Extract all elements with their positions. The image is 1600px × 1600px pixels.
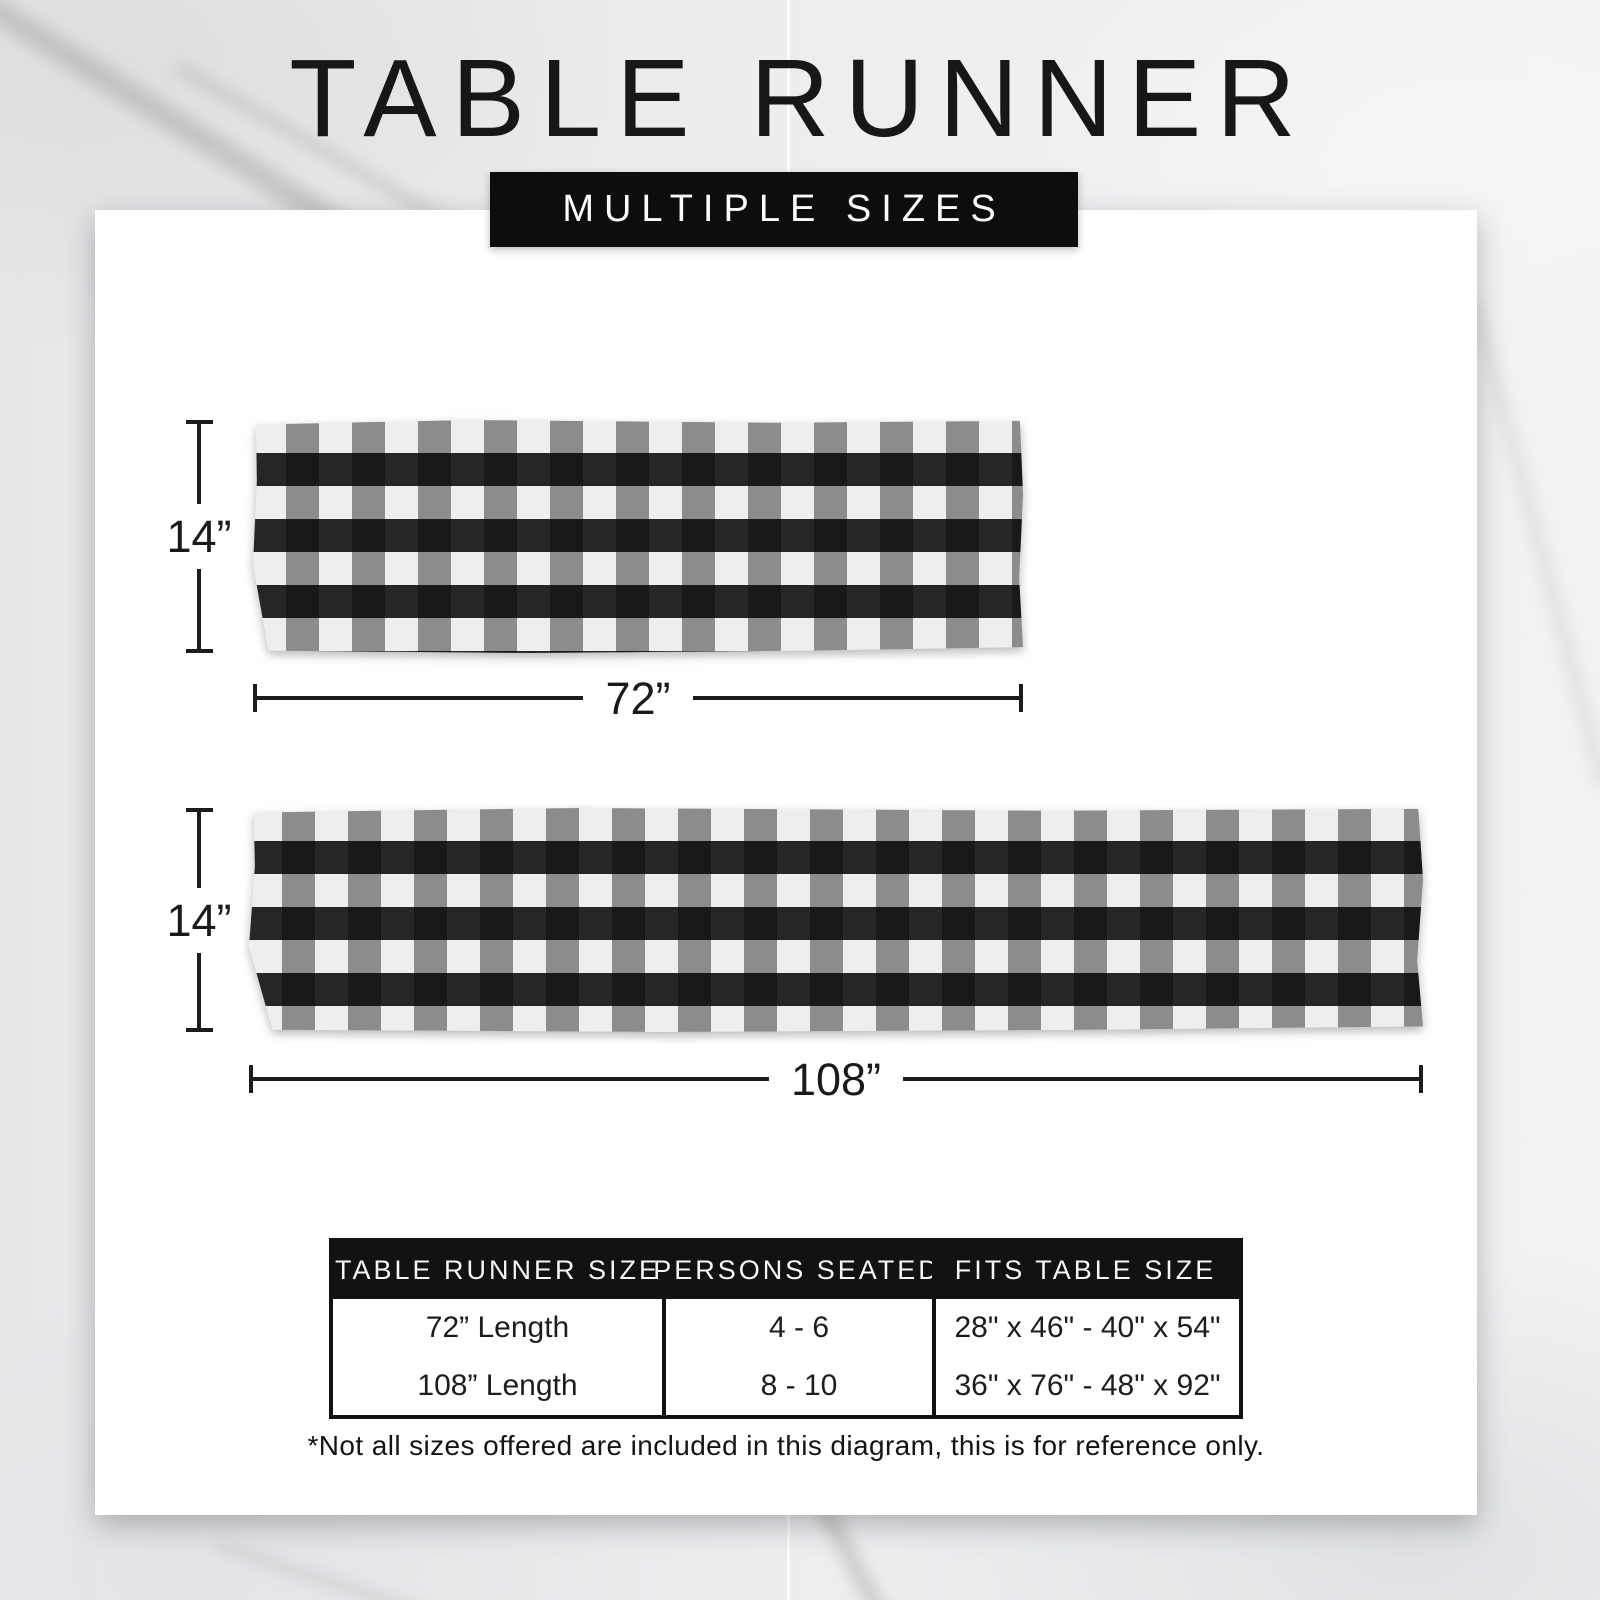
size-table-cell: 4 - 6 bbox=[662, 1299, 932, 1357]
size-table-header-fits-table-size: FITS TABLE SIZE bbox=[932, 1242, 1239, 1299]
dimension-line bbox=[197, 953, 201, 1029]
length-label-72-runner: 72” bbox=[605, 676, 670, 721]
size-table-header-persons-seated: PERSONS SEATED bbox=[662, 1242, 932, 1299]
dimension-line bbox=[253, 1077, 769, 1081]
size-table-cell: 72” Length bbox=[333, 1299, 662, 1357]
height-label-72-runner: 14” bbox=[166, 514, 231, 559]
length-label-108-runner: 108” bbox=[791, 1057, 881, 1102]
buffalo-check-pattern bbox=[253, 420, 1023, 653]
size-table-cell: 28" x 46" - 40" x 54" bbox=[932, 1299, 1239, 1357]
page-title: TABLE RUNNER bbox=[0, 44, 1600, 154]
height-label-108-runner: 14” bbox=[166, 898, 231, 943]
dimension-cap bbox=[186, 1028, 213, 1032]
marble-vein bbox=[216, 1540, 619, 1600]
subtitle-banner: MULTIPLE SIZES bbox=[490, 172, 1078, 247]
size-table-cell: 8 - 10 bbox=[662, 1357, 932, 1415]
dimension-cap bbox=[1019, 684, 1023, 712]
height-dimension-72: 14” bbox=[149, 420, 249, 653]
size-table-cell: 36" x 76" - 48" x 92" bbox=[932, 1357, 1239, 1415]
buffalo-check-pattern bbox=[249, 808, 1423, 1032]
content-card: 14” 72” 14” 108” bbox=[95, 210, 1477, 1515]
dimension-line bbox=[197, 424, 201, 504]
dimension-line bbox=[197, 569, 201, 649]
runner-72-image bbox=[253, 420, 1023, 653]
marble-vein bbox=[1468, 300, 1600, 786]
size-table-cell: 108” Length bbox=[333, 1357, 662, 1415]
size-table: TABLE RUNNER SIZE PERSONS SEATED FITS TA… bbox=[329, 1238, 1243, 1419]
table-runner-infographic: TABLE RUNNER MULTIPLE SIZES 14” 72” bbox=[0, 0, 1600, 1600]
runner-108-image bbox=[249, 808, 1423, 1032]
marble-vein bbox=[814, 1500, 999, 1600]
dimension-line bbox=[257, 696, 583, 700]
size-table-header-runner-size: TABLE RUNNER SIZE bbox=[333, 1242, 662, 1299]
height-dimension-108: 14” bbox=[149, 808, 249, 1032]
dimension-cap bbox=[186, 649, 213, 653]
length-dimension-72: 72” bbox=[253, 681, 1023, 715]
reference-footnote: *Not all sizes offered are included in t… bbox=[95, 1430, 1477, 1462]
dimension-line bbox=[903, 1077, 1419, 1081]
length-dimension-108: 108” bbox=[249, 1062, 1423, 1096]
dimension-line bbox=[197, 812, 201, 888]
dimension-cap bbox=[1419, 1065, 1423, 1093]
subtitle-banner-label: MULTIPLE SIZES bbox=[562, 188, 1005, 231]
dimension-line bbox=[693, 696, 1019, 700]
